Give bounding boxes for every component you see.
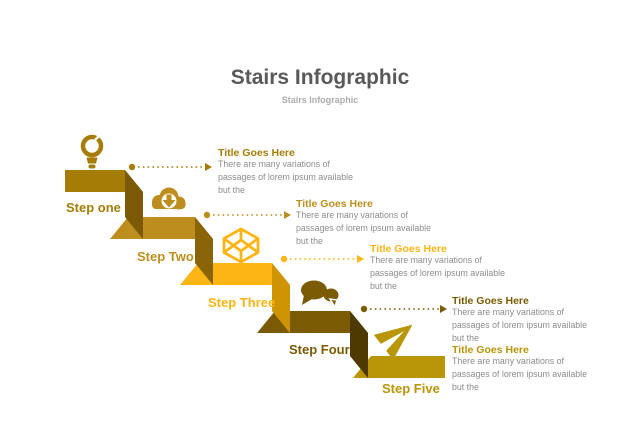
callout-title: Title Goes Here — [218, 148, 353, 158]
chat-bubbles-icon — [301, 281, 340, 308]
callout-line: passages of lorem ipsum available — [296, 222, 431, 235]
callout-line: but the — [370, 280, 505, 293]
stair-riser-4 — [350, 311, 368, 378]
step-label-4: Step Four — [289, 342, 350, 357]
step-label-3: Step Three — [208, 295, 275, 310]
step-label-5: Step Five — [382, 381, 440, 396]
slide-canvas: Stairs Infographic Stairs Infographic — [0, 0, 640, 443]
callout-line: There are many variations of — [452, 306, 587, 319]
callout-3: Title Goes Here There are many variation… — [370, 244, 505, 292]
callout-line: but the — [452, 332, 587, 345]
callout-title: Title Goes Here — [452, 345, 587, 355]
connector-3 — [281, 255, 364, 263]
step-label-1: Step one — [66, 200, 121, 215]
callout-line: passages of lorem ipsum available — [452, 368, 587, 381]
paper-plane-icon — [374, 312, 422, 359]
cloud-download-icon — [152, 188, 186, 210]
callout-1: Title Goes Here There are many variation… — [218, 148, 353, 196]
callout-title: Title Goes Here — [370, 244, 505, 254]
callout-line: passages of lorem ipsum available — [452, 319, 587, 332]
callout-2: Title Goes Here There are many variation… — [296, 199, 431, 247]
lightbulb-icon — [83, 135, 101, 169]
step-label-2: Step Two — [137, 249, 194, 264]
connector-2 — [204, 211, 291, 219]
callout-line: There are many variations of — [218, 158, 353, 171]
callout-line: There are many variations of — [370, 254, 505, 267]
callout-line: passages of lorem ipsum available — [218, 171, 353, 184]
cube-icon — [224, 229, 258, 262]
callout-line: but the — [452, 381, 587, 394]
callout-title: Title Goes Here — [452, 296, 587, 306]
connector-1 — [129, 163, 212, 171]
callout-4: Title Goes Here There are many variation… — [452, 296, 587, 344]
callout-line: passages of lorem ipsum available — [370, 267, 505, 280]
callout-line: There are many variations of — [296, 209, 431, 222]
callout-5: Title Goes Here There are many variation… — [452, 345, 587, 393]
callout-title: Title Goes Here — [296, 199, 431, 209]
callout-line: There are many variations of — [452, 355, 587, 368]
connector-4 — [361, 305, 447, 313]
callout-line: but the — [218, 184, 353, 197]
